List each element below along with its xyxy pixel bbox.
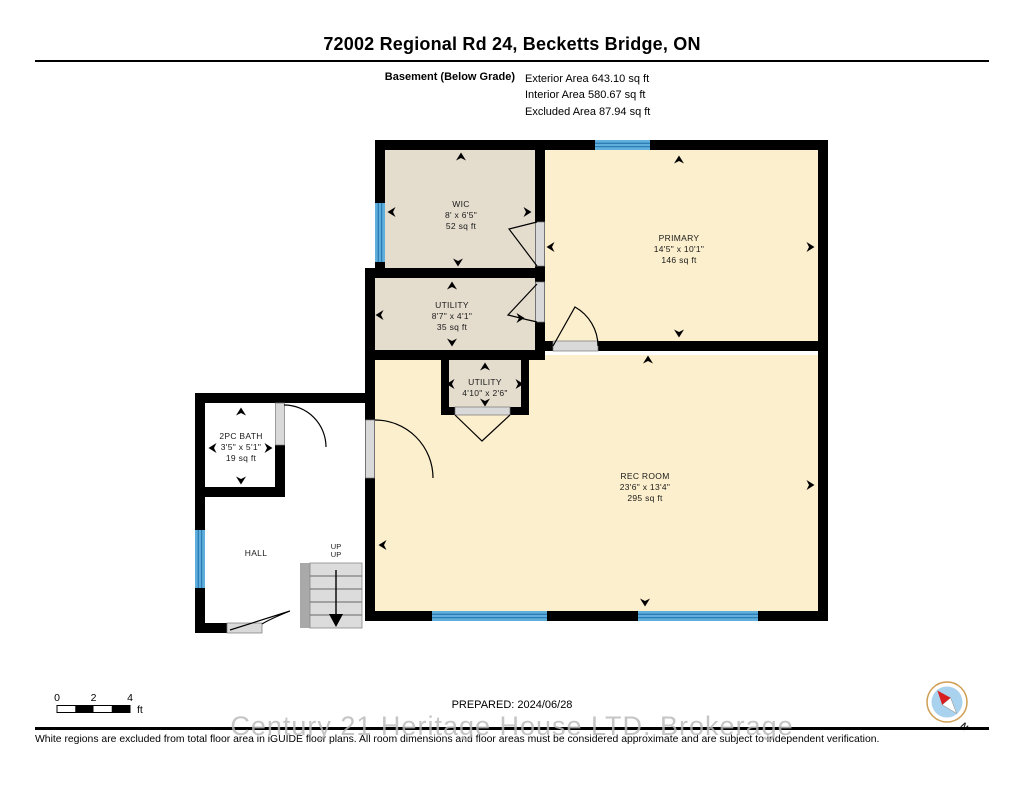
page-title: 72002 Regional Rd 24, Becketts Bridge, O…	[0, 34, 1024, 55]
interior-area: Interior Area 580.67 sq ft	[525, 87, 650, 103]
staircase	[300, 563, 362, 628]
wic-area: 52 sq ft	[446, 221, 477, 231]
wic-room	[380, 145, 540, 273]
window	[195, 530, 205, 588]
door-leaf	[227, 623, 262, 633]
primary-name: PRIMARY	[659, 233, 700, 243]
room-fills	[200, 145, 823, 628]
door-leaf	[276, 403, 285, 445]
floor-plan-drawing: WIC 8' x 6'5" 52 sq ft PRIMARY 14'5" x 1…	[0, 0, 1024, 791]
utility1-dims: 8'7" x 4'1"	[432, 311, 472, 321]
primary-area: 146 sq ft	[661, 255, 697, 265]
window	[375, 203, 385, 262]
area-summary: Exterior Area 643.10 sq ft Interior Area…	[525, 71, 650, 120]
door-leaf	[536, 282, 545, 322]
door-leaf	[536, 222, 545, 266]
window	[432, 611, 547, 621]
utility2-name: UTILITY	[468, 377, 502, 387]
rec-room	[370, 355, 823, 616]
window	[595, 140, 650, 150]
primary-dims: 14'5" x 10'1"	[654, 244, 705, 254]
wic-name: WIC	[452, 199, 469, 209]
stairs-up-label-2: UP	[331, 550, 341, 559]
exterior-area: Exterior Area 643.10 sq ft	[525, 71, 650, 87]
brokerage-watermark: Century 21 Heritage House LTD. Brokerage	[0, 711, 1024, 742]
wic-dims: 8' x 6'5"	[445, 210, 477, 220]
door-leaf	[366, 420, 375, 478]
bath-dims: 3'5" x 5'1"	[221, 442, 261, 452]
utility1-name: UTILITY	[435, 300, 469, 310]
utility2-dims: 4'10" x 2'6"	[462, 388, 508, 398]
excluded-area: Excluded Area 87.94 sq ft	[525, 104, 650, 120]
bath-area: 19 sq ft	[226, 453, 257, 463]
rec-name: REC ROOM	[620, 471, 669, 481]
rec-area: 295 sq ft	[627, 493, 663, 503]
utility1-area: 35 sq ft	[437, 322, 468, 332]
prepared-date: PREPARED: 2024/06/28	[0, 699, 1024, 711]
floor-label: Basement (Below Grade)	[300, 71, 515, 83]
window	[638, 611, 758, 621]
rec-dims: 23'6" x 13'4"	[620, 482, 671, 492]
header-divider	[35, 60, 989, 62]
door-threshold	[553, 341, 598, 351]
floor-plan-page: 72002 Regional Rd 24, Becketts Bridge, O…	[0, 0, 1024, 791]
hall-name: HALL	[245, 548, 267, 558]
bath-name: 2PC BATH	[219, 431, 262, 441]
door-threshold	[455, 407, 510, 415]
